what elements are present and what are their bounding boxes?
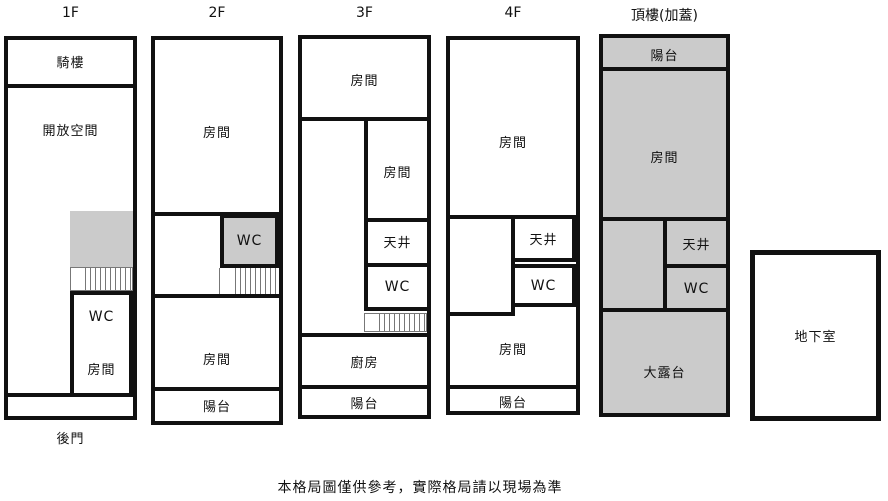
room-label-balcony: 陽台 — [450, 392, 576, 411]
wc-box: WC — [220, 214, 279, 268]
floorplan-canvas: 1F 2F 3F 4F 頂樓(加蓋) 騎樓 開放空間 WC 房間 後門 房間 W… — [0, 0, 888, 501]
stair-treads — [85, 268, 132, 290]
room-label-room-bottom: 房間 — [450, 339, 576, 358]
wall-divider — [450, 312, 515, 316]
room-label-open-space: 開放空間 — [8, 120, 133, 139]
plan-3f: 房間 房間 天井 WC 廚房 陽台 — [298, 35, 431, 419]
stair-landing-area — [70, 211, 133, 267]
floor-title-1f: 1F — [4, 5, 137, 21]
stairs — [364, 313, 427, 332]
room-label-room: 房間 — [603, 147, 726, 166]
floor-title-3f: 3F — [298, 5, 431, 21]
wall-divider — [450, 385, 576, 389]
room-label-wc: WC — [74, 309, 129, 325]
room-label-balcony: 陽台 — [302, 393, 427, 412]
room-label-room-top: 房間 — [450, 132, 576, 151]
room-label-arcade: 騎樓 — [8, 52, 133, 71]
wall-divider — [302, 385, 427, 389]
disclaimer-caption: 本格局圖僅供參考，實際格局請以現場為準 — [0, 477, 840, 497]
wall-divider — [364, 218, 427, 222]
stairs — [70, 267, 133, 291]
room-label-room-top: 房間 — [155, 122, 279, 141]
stairs — [219, 268, 279, 294]
room-label-balcony: 陽台 — [603, 45, 726, 64]
room-label-room-bottom: 房間 — [155, 349, 279, 368]
wall-divider — [8, 84, 133, 88]
wall-divider — [155, 294, 279, 298]
plan-2f: 房間 WC 房間 陽台 — [151, 36, 283, 425]
wall-divider — [603, 67, 726, 71]
wall-divider — [364, 307, 427, 311]
plan-4f: 房間 天井 WC 房間 陽台 — [446, 36, 580, 415]
room-label-wc: WC — [531, 278, 557, 294]
room-label-light-well: 天井 — [667, 234, 726, 253]
floor-title-roof: 頂樓(加蓋) — [599, 5, 730, 25]
floor-title-2f: 2F — [151, 5, 283, 21]
plan-1f: 騎樓 開放空間 WC 房間 — [4, 36, 137, 420]
wall-divider — [603, 308, 726, 312]
wc-room-box: WC 房間 — [70, 291, 133, 397]
plan-basement: 地下室 — [750, 250, 881, 421]
room-label-wc: WC — [667, 281, 726, 297]
wall-divider — [155, 387, 279, 391]
room-label-room-mid: 房間 — [368, 162, 427, 181]
room-label-kitchen: 廚房 — [302, 352, 427, 371]
room-label-light-well: 天井 — [529, 229, 557, 248]
wall-divider — [663, 264, 726, 268]
room-label-balcony: 陽台 — [155, 396, 279, 415]
wc-box: WC — [511, 264, 576, 307]
wall-divider — [302, 333, 427, 337]
room-label-room-top: 房間 — [302, 70, 427, 89]
room-label-light-well: 天井 — [368, 232, 427, 251]
light-well-box: 天井 — [511, 215, 576, 262]
label-back-door: 後門 — [4, 428, 137, 447]
room-label-wc: WC — [237, 233, 263, 249]
room-label-terrace: 大露台 — [603, 362, 726, 381]
room-label-room: 房間 — [74, 359, 129, 378]
plan-roof: 陽台 房間 天井 WC 大露台 — [599, 34, 730, 417]
wall-divider — [364, 263, 427, 267]
stair-treads — [235, 268, 279, 294]
floor-title-4f: 4F — [446, 5, 580, 21]
wall-divider — [8, 393, 133, 397]
room-label-basement: 地下室 — [794, 326, 836, 345]
stair-treads — [379, 314, 426, 331]
room-label-wc: WC — [368, 279, 427, 295]
